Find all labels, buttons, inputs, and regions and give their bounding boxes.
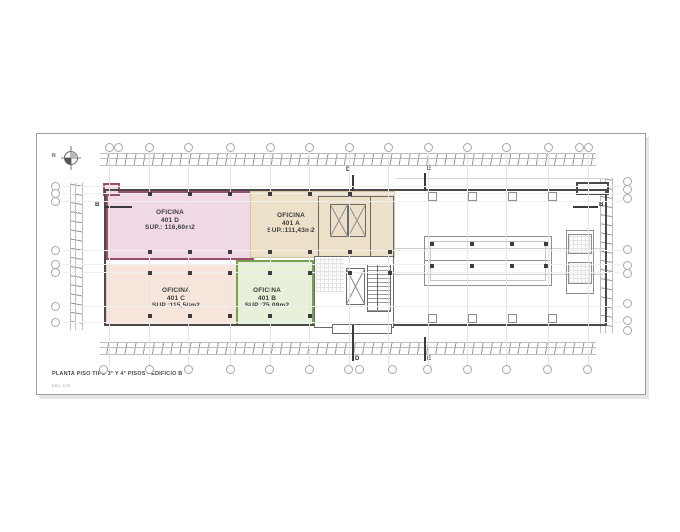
grid-line-horizontal — [62, 193, 622, 194]
grid-bubble — [424, 143, 433, 152]
grid-bubble — [623, 326, 632, 335]
grid-line-horizontal — [62, 264, 622, 265]
elevator-shaft-icon — [348, 204, 366, 237]
grid-line-horizontal — [62, 322, 622, 323]
grid-line-vertical — [309, 150, 310, 366]
section-line-d-bottom — [352, 325, 354, 361]
column-marker-outline — [508, 314, 517, 323]
grid-line-vertical — [388, 150, 389, 366]
grid-bubble — [266, 143, 275, 152]
dimension-strip-bottom — [100, 342, 596, 355]
column-marker — [188, 314, 192, 318]
grid-line-vertical — [188, 150, 189, 366]
column-marker — [148, 192, 152, 196]
dimension-strip-top — [100, 153, 596, 166]
section-line-e-bottom — [424, 337, 426, 361]
grid-bubble — [265, 365, 274, 374]
grid-bubble — [584, 143, 593, 152]
stair-center-line — [377, 264, 378, 310]
column-marker-outline — [468, 192, 477, 201]
office-number: 401 D — [128, 217, 212, 225]
grid-bubble — [51, 246, 60, 255]
column-marker — [228, 271, 232, 275]
section-line-d-top — [352, 175, 354, 191]
grid-bubble — [544, 143, 553, 152]
section-marker-d-bottom: D — [355, 356, 359, 362]
office-number: 401 C — [134, 295, 218, 303]
office-area: SUP.:111,43m2 — [249, 227, 333, 235]
section-line-e-top — [424, 173, 426, 191]
grid-line-horizontal — [62, 250, 622, 251]
column-marker — [388, 271, 392, 275]
grid-bubble — [226, 143, 235, 152]
grid-bubble — [344, 365, 353, 374]
column-marker — [348, 271, 352, 275]
grid-bubble — [226, 365, 235, 374]
grid-bubble — [623, 316, 632, 325]
office-name: OFICINA — [128, 209, 212, 217]
column-marker — [188, 192, 192, 196]
column-marker — [470, 242, 474, 246]
column-marker — [228, 250, 232, 254]
grid-bubble — [105, 143, 114, 152]
section-marker-b-left: B — [95, 202, 99, 208]
grid-line-horizontal — [62, 306, 622, 307]
grid-bubble — [623, 299, 632, 308]
column-marker — [544, 242, 548, 246]
grid-bubble — [388, 365, 397, 374]
scale-note: ESC. 1/75 — [52, 383, 70, 388]
column-marker — [308, 192, 312, 196]
column-marker — [268, 271, 272, 275]
grid-bubble — [355, 365, 364, 374]
grid-bubble — [502, 143, 511, 152]
column-marker — [430, 264, 434, 268]
grid-bubble — [384, 143, 393, 152]
grid-line-vertical — [109, 150, 110, 366]
column-marker — [510, 264, 514, 268]
column-marker — [544, 264, 548, 268]
drawing-title: PLANTA PISO TIPO 3° Y 4° PISOS - EDIFICI… — [52, 371, 182, 377]
column-marker — [430, 242, 434, 246]
column-marker — [308, 314, 312, 318]
office-area: SUP.: 116,60m2 — [128, 224, 212, 232]
column-marker-outline — [508, 192, 517, 201]
grid-bubble — [623, 185, 632, 194]
office-name: OFICINA — [249, 212, 333, 220]
section-line-b-right — [573, 206, 598, 208]
grid-line-vertical — [349, 150, 350, 366]
grid-bubble — [305, 143, 314, 152]
column-marker — [268, 314, 272, 318]
grid-bubble — [502, 365, 511, 374]
column-marker — [470, 264, 474, 268]
office-name: OFICINA — [134, 287, 218, 295]
grid-line-vertical — [588, 150, 589, 366]
column-marker — [510, 242, 514, 246]
office-number: 401 B — [225, 295, 309, 303]
column-marker — [228, 192, 232, 196]
grid-line-vertical — [428, 150, 429, 366]
grid-bubble — [583, 365, 592, 374]
grid-bubble — [463, 365, 472, 374]
grid-bubble — [543, 365, 552, 374]
office-number: 401 A — [249, 220, 333, 228]
column-marker — [348, 192, 352, 196]
column-marker — [228, 314, 232, 318]
section-marker-b-right: B — [599, 202, 603, 208]
grid-line-vertical — [149, 150, 150, 366]
north-arrow-icon — [59, 145, 83, 171]
dimension-strip-left — [70, 183, 83, 330]
north-label: N — [52, 153, 56, 159]
grid-bubble — [184, 143, 193, 152]
column-marker — [268, 192, 272, 196]
column-marker — [148, 250, 152, 254]
column-marker — [308, 271, 312, 275]
core-partition — [370, 196, 371, 256]
grid-bubble — [305, 365, 314, 374]
grid-line-vertical — [270, 150, 271, 366]
grid-bubble — [463, 143, 472, 152]
grid-bubble — [51, 197, 60, 206]
grid-bubble — [423, 365, 432, 374]
grid-bubble — [623, 245, 632, 254]
floor-plan-page: N OFICINA — [0, 0, 680, 532]
grid-line-horizontal — [62, 272, 622, 273]
column-marker-outline — [548, 192, 557, 201]
grid-bubble — [51, 318, 60, 327]
grid-bubble — [145, 365, 154, 374]
grid-line-horizontal — [62, 186, 622, 187]
grid-line-horizontal — [62, 201, 622, 202]
grid-bubble — [99, 365, 108, 374]
column-marker-outline — [428, 192, 437, 201]
grid-line-vertical — [548, 150, 549, 366]
entrance-steps — [332, 324, 392, 334]
grid-line-vertical — [506, 150, 507, 366]
column-marker — [308, 250, 312, 254]
column-marker-outline — [468, 314, 477, 323]
office-401a-label: OFICINA 401 A SUP.:111,43m2 — [249, 212, 333, 235]
grid-bubble — [145, 143, 154, 152]
column-marker-outline — [428, 314, 437, 323]
grid-line-vertical — [230, 150, 231, 366]
column-marker — [188, 250, 192, 254]
column-marker — [268, 250, 272, 254]
right-wing-structure-inner — [430, 241, 546, 281]
grid-bubble — [623, 269, 632, 278]
column-marker — [148, 314, 152, 318]
office-401d-label: OFICINA 401 D SUP.: 116,60m2 — [128, 209, 212, 232]
grid-bubble — [51, 302, 60, 311]
grid-bubble — [184, 365, 193, 374]
grid-bubble — [345, 143, 354, 152]
grid-bubble — [623, 194, 632, 203]
column-marker — [348, 250, 352, 254]
column-marker — [148, 271, 152, 275]
column-marker — [388, 250, 392, 254]
grid-bubble — [575, 143, 584, 152]
grid-bubble — [114, 143, 123, 152]
column-marker-outline — [548, 314, 557, 323]
office-name: OFICINA — [225, 287, 309, 295]
grid-line-vertical — [467, 150, 468, 366]
grid-bubble — [51, 268, 60, 277]
column-marker — [188, 271, 192, 275]
